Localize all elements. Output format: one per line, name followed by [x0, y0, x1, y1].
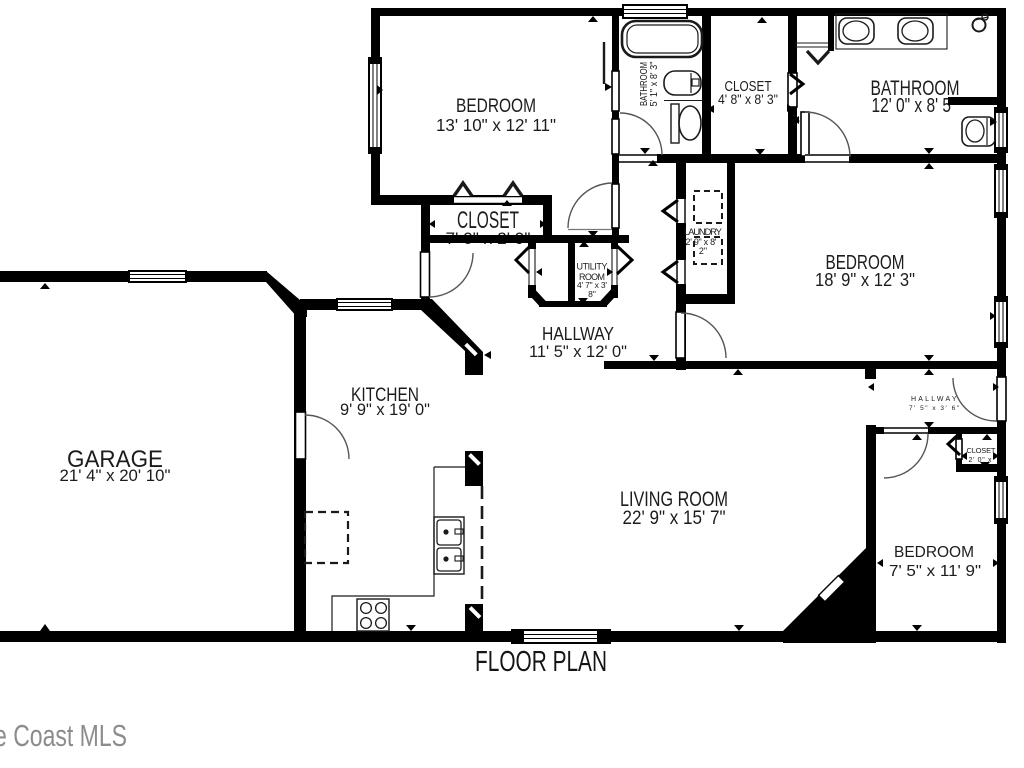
svg-text:e Coast MLS: e Coast MLS: [0, 718, 127, 753]
svg-text:2' 0" x: 2' 0" x: [969, 457, 993, 464]
svg-text:2": 2": [699, 246, 707, 256]
svg-text:CLOSET: CLOSET: [457, 207, 519, 234]
svg-text:HALLWAY: HALLWAY: [911, 396, 957, 403]
svg-text:18' 9" x 12' 3": 18' 9" x 12' 3": [815, 270, 915, 290]
svg-text:HALLWAY: HALLWAY: [542, 323, 614, 344]
svg-text:8": 8": [588, 289, 596, 299]
svg-text:BEDROOM: BEDROOM: [894, 544, 974, 561]
svg-text:7' 5" x 11' 9": 7' 5" x 11' 9": [889, 563, 981, 580]
svg-text:7' 5" x 3' 6": 7' 5" x 3' 6": [909, 405, 960, 412]
svg-text:5' 1" x 8' 3": 5' 1" x 8' 3": [649, 61, 660, 106]
svg-text:UTILITY: UTILITY: [577, 262, 608, 272]
svg-text:BATHROOM: BATHROOM: [871, 76, 960, 100]
svg-text:13' 10" x 12' 11": 13' 10" x 12' 11": [436, 115, 556, 135]
svg-text:21' 4" x 20' 10": 21' 4" x 20' 10": [60, 466, 171, 485]
svg-text:4' 8" x 8' 3": 4' 8" x 8' 3": [718, 92, 778, 107]
svg-text:9' 9" x 19' 0": 9' 9" x 19' 0": [340, 400, 430, 419]
svg-text:BEDROOM: BEDROOM: [456, 95, 536, 117]
svg-text:FLOOR PLAN: FLOOR PLAN: [475, 646, 607, 678]
svg-text:22' 9" x 15' 7": 22' 9" x 15' 7": [623, 508, 726, 529]
svg-text:CLOSET: CLOSET: [967, 446, 996, 455]
svg-text:11' 5" x 12' 0": 11' 5" x 12' 0": [529, 343, 627, 361]
